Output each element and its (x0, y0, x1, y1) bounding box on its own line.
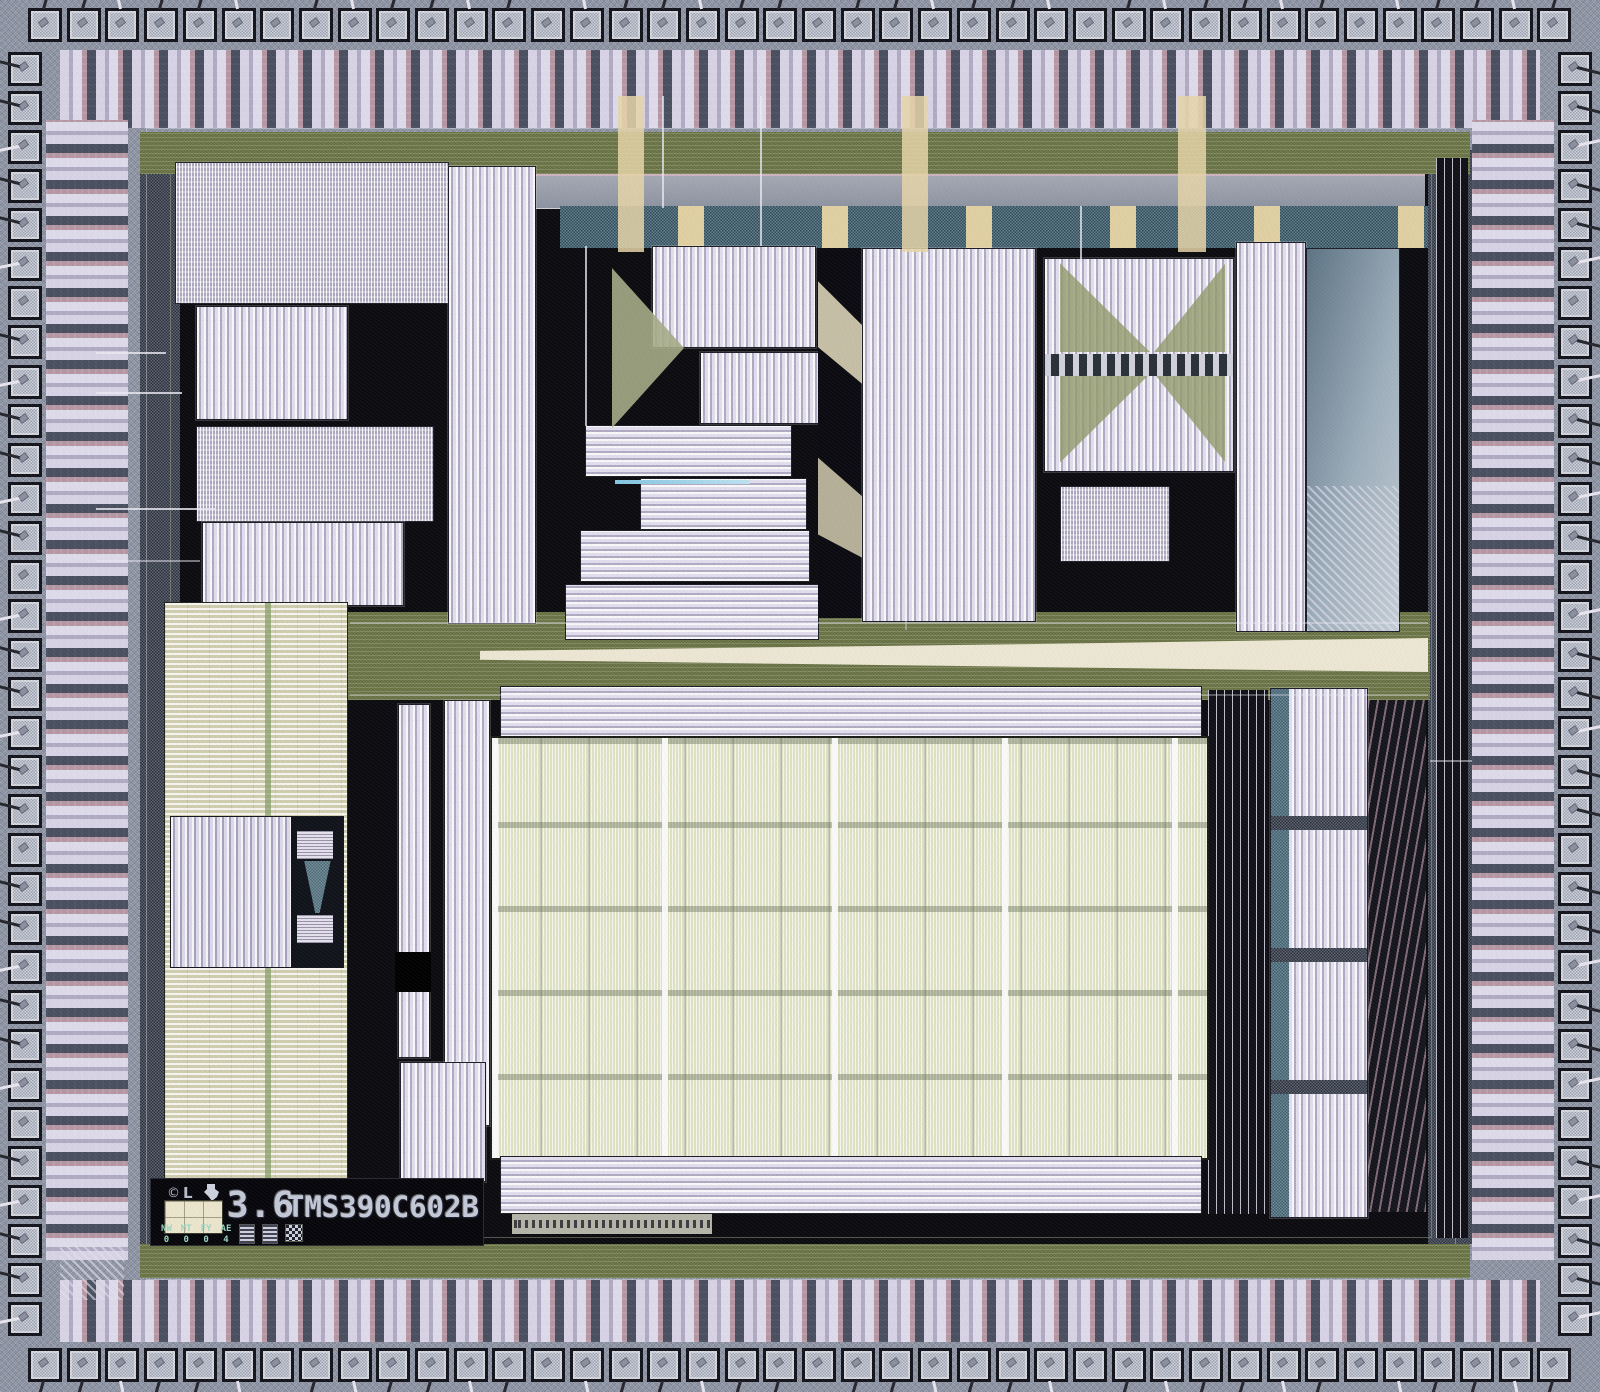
bond-pad (763, 8, 797, 42)
bond-pad (1558, 1224, 1592, 1258)
diagonal-routing-strip (1368, 700, 1426, 1212)
routing-gap (818, 252, 862, 618)
speckle-band (1271, 816, 1367, 830)
shifter-triangle (1060, 373, 1150, 462)
bond-pad (8, 52, 42, 86)
power-ring-bottom (140, 1244, 1470, 1278)
bond-pad (1305, 8, 1339, 42)
routing-wire (585, 246, 587, 426)
bond-pad (105, 1348, 139, 1382)
bond-pad (8, 169, 42, 203)
speckle-band (1271, 948, 1367, 962)
mask-glyph-box (263, 1225, 277, 1243)
bond-pad (1558, 599, 1592, 633)
hatch-pattern (1307, 486, 1399, 631)
cell-row-band-4 (565, 584, 819, 640)
bond-pad (1558, 1107, 1592, 1141)
corner-hatch (60, 1242, 124, 1300)
register-array-inset (170, 816, 344, 968)
bond-pad (879, 8, 913, 42)
speckle-band (1271, 1080, 1367, 1094)
bond-pad (8, 1146, 42, 1180)
bond-pad (531, 8, 565, 42)
bond-pad (8, 599, 42, 633)
via-stack-column (1178, 96, 1206, 252)
bond-pad (8, 286, 42, 320)
routing-wire (760, 96, 762, 246)
funnel-structure (295, 861, 339, 913)
bond-pad (841, 8, 875, 42)
bond-pad (260, 1348, 294, 1382)
bond-pad (8, 794, 42, 828)
bond-pad (531, 1348, 565, 1382)
cell-row-band-2 (640, 478, 807, 530)
bond-pad (299, 1348, 333, 1382)
bond-pad (8, 130, 42, 164)
part-number-text: TMS390C602B (287, 1190, 479, 1224)
bond-pad (1460, 8, 1494, 42)
bond-pad (8, 404, 42, 438)
beige-wedge (818, 281, 862, 427)
bond-pad (1558, 443, 1592, 477)
revision-value: 0 (203, 1236, 208, 1245)
bond-pad (1558, 638, 1592, 672)
scale-mark-text: 3.6 (227, 1185, 295, 1226)
bond-pad (1112, 8, 1146, 42)
bond-pad (647, 8, 681, 42)
bond-pad (338, 8, 372, 42)
bond-pad (609, 1348, 643, 1382)
bond-pad (1558, 130, 1592, 164)
io-driver-band-top (60, 50, 1540, 128)
revision-label: NW (161, 1225, 172, 1234)
revision-value: 4 (223, 1236, 228, 1245)
bond-pad (492, 8, 526, 42)
revision-label: FY (201, 1225, 212, 1234)
bond-pad (8, 443, 42, 477)
bond-pad (8, 560, 42, 594)
bond-pad (1558, 911, 1592, 945)
beige-wedge (818, 442, 862, 596)
bond-pad-ring-right (1558, 52, 1592, 1336)
bond-pad (1421, 8, 1455, 42)
bond-pad (1558, 1029, 1592, 1063)
bond-pad (1421, 1348, 1455, 1382)
bond-pad (1537, 1348, 1571, 1382)
array-id-strip (512, 1214, 712, 1234)
bond-pad (8, 1185, 42, 1219)
mask-glyph-box (240, 1225, 254, 1243)
routing-fan-right (1436, 158, 1468, 1238)
bus-wire (350, 694, 1428, 696)
bond-pad (1499, 1348, 1533, 1382)
revision-code: FY 0 (201, 1225, 212, 1245)
bond-pad (1558, 755, 1592, 789)
bond-pad (1558, 1146, 1592, 1180)
bond-pad (1150, 1348, 1184, 1382)
routing-wire (96, 352, 166, 354)
routing-wire (1430, 760, 1472, 762)
blue-metal-streak (615, 480, 750, 484)
bond-pad (1558, 716, 1592, 750)
bond-pad (1228, 1348, 1262, 1382)
revision-label: MT (181, 1225, 192, 1234)
bond-pad (647, 1348, 681, 1382)
logo-letter: L (183, 1184, 193, 1202)
bond-pad (299, 8, 333, 42)
bond-pad (8, 950, 42, 984)
revision-code: AE 4 (221, 1225, 232, 1245)
bond-pad (8, 521, 42, 555)
bond-pad (8, 482, 42, 516)
ti-logo-icon (203, 1183, 220, 1202)
cell-block-center-2 (700, 352, 820, 424)
bond-pad (1189, 8, 1223, 42)
bond-pad (105, 8, 139, 42)
array-bottom-cell-row (500, 1156, 1202, 1214)
bond-pad (8, 1302, 42, 1336)
bond-pad (1558, 833, 1592, 867)
bond-pad (1150, 8, 1184, 42)
bond-pad (1558, 482, 1592, 516)
cell-column-block-left-3 (202, 522, 404, 606)
revision-code-row: NW 0 MT 0 FY 0 AE 4 (161, 1225, 302, 1245)
bond-pad (1558, 247, 1592, 281)
die-marking-band: © L 3.6 TMS390C602B NW 0 MT 0 FY 0 AE 4 (150, 1178, 484, 1246)
logic-block-left-2 (196, 426, 434, 522)
routing-gap-lines (1208, 690, 1268, 1214)
bond-pad (1383, 1348, 1417, 1382)
bond-pad (338, 1348, 372, 1382)
bond-pad (1558, 872, 1592, 906)
bond-pad (918, 8, 952, 42)
bond-pad (1558, 91, 1592, 125)
bond-pad (1189, 1348, 1223, 1382)
bond-pad (8, 208, 42, 242)
bond-pad (415, 1348, 449, 1382)
bond-pad (144, 1348, 178, 1382)
bond-pad (260, 8, 294, 42)
bond-pad (1073, 1348, 1107, 1382)
shifter-triangle (1154, 373, 1225, 462)
cell-row-band-3 (580, 530, 810, 582)
bond-pad (8, 1068, 42, 1102)
copyright-icon: © (167, 1186, 180, 1201)
bond-pad (1073, 8, 1107, 42)
revision-value: 0 (164, 1236, 169, 1245)
bond-pad (957, 8, 991, 42)
routing-wire (96, 508, 216, 510)
steel-gradient-panel (1306, 248, 1400, 632)
bond-pad (67, 8, 101, 42)
cell-strip-bottom-right (1270, 688, 1368, 1218)
bond-pad (1558, 52, 1592, 86)
mini-array (297, 831, 333, 859)
revision-label: AE (221, 1225, 232, 1234)
routing-wire (662, 96, 664, 208)
bond-pad (1558, 677, 1592, 711)
bond-pad (957, 1348, 991, 1382)
bond-pad (8, 1263, 42, 1297)
bond-pad (8, 1029, 42, 1063)
bond-pad (8, 911, 42, 945)
io-driver-band-bottom (60, 1280, 1540, 1342)
bond-pad (1267, 1348, 1301, 1382)
bond-pad (686, 1348, 720, 1382)
bond-pad (802, 1348, 836, 1382)
bond-pad (8, 990, 42, 1024)
shifter-triangle (1060, 263, 1150, 352)
bond-pad (28, 8, 62, 42)
routing-wire (1080, 206, 1082, 262)
bond-pad (1034, 1348, 1068, 1382)
bond-pad (1537, 8, 1571, 42)
cell-column-block-left-1 (196, 306, 348, 420)
bond-pad (454, 1348, 488, 1382)
bond-pad (1558, 1185, 1592, 1219)
bond-pad (1558, 950, 1592, 984)
bond-pad (570, 1348, 604, 1382)
cell-strip-right (1236, 242, 1306, 632)
bond-pad (8, 91, 42, 125)
bond-pad (918, 1348, 952, 1382)
bus-wire (350, 622, 1428, 624)
routing-wire (905, 250, 907, 630)
bond-pad (8, 325, 42, 359)
bond-pad (1267, 8, 1301, 42)
barrel-shifter-block (1044, 258, 1234, 472)
cell-column-block-tall (448, 166, 536, 624)
bond-pad (1558, 404, 1592, 438)
bond-pad (8, 833, 42, 867)
decoder-strip-1 (398, 704, 430, 1058)
revision-value: 0 (184, 1236, 189, 1245)
die-photograph: © L 3.6 TMS390C602B NW 0 MT 0 FY 0 AE 4 (0, 0, 1600, 1392)
io-driver-band-left (46, 120, 128, 1260)
bond-pad (67, 1348, 101, 1382)
routing-wire (96, 560, 200, 562)
bond-pad (222, 8, 256, 42)
bond-pad (1558, 990, 1592, 1024)
bond-pad (686, 8, 720, 42)
bond-pad (1558, 794, 1592, 828)
bond-pad (1112, 1348, 1146, 1382)
decoder-strip-3 (400, 1062, 486, 1182)
bond-pad (1558, 325, 1592, 359)
bond-pad (1558, 1263, 1592, 1297)
bond-pad (1558, 286, 1592, 320)
bond-pad (8, 1107, 42, 1141)
bond-pad (415, 8, 449, 42)
via-stack-column (902, 96, 928, 252)
bond-pad (996, 1348, 1030, 1382)
logic-block-right (1060, 486, 1170, 562)
bond-pad (841, 1348, 875, 1382)
bond-pad (763, 1348, 797, 1382)
bond-pad (183, 1348, 217, 1382)
bond-pad (1558, 1068, 1592, 1102)
bond-pad-ring-bottom (28, 1348, 1572, 1382)
cell-row-band-1 (585, 425, 792, 477)
bond-pad (183, 8, 217, 42)
bond-pad (8, 872, 42, 906)
mini-array (297, 915, 333, 943)
bond-pad (1558, 521, 1592, 555)
bond-pad (8, 1224, 42, 1258)
bond-pad (376, 1348, 410, 1382)
bond-pad (376, 8, 410, 42)
bond-pad (1344, 1348, 1378, 1382)
bond-pad (492, 1348, 526, 1382)
via-stack-column (618, 96, 644, 252)
bond-pad (1558, 365, 1592, 399)
bond-pad (222, 1348, 256, 1382)
bond-pad (8, 755, 42, 789)
bond-pad-ring-left (8, 52, 42, 1336)
routing-wire (96, 392, 182, 394)
bond-pad (1558, 169, 1592, 203)
main-datapath-array (490, 736, 1209, 1160)
bond-pad-ring-top (28, 8, 1572, 42)
bond-pad (1460, 1348, 1494, 1382)
bond-pad (1228, 8, 1262, 42)
bond-pad (1305, 1348, 1339, 1382)
shifter-triangle (1154, 263, 1225, 352)
bond-pad (570, 8, 604, 42)
bond-pad (1344, 8, 1378, 42)
bond-pad (8, 677, 42, 711)
bond-pad (8, 638, 42, 672)
bond-pad (8, 716, 42, 750)
bond-pad (725, 1348, 759, 1382)
bond-pad (996, 8, 1030, 42)
revision-code: NW 0 (161, 1225, 172, 1245)
bond-pad (1383, 8, 1417, 42)
bond-pad (1499, 8, 1533, 42)
dark-notch (395, 952, 431, 992)
bond-pad (1558, 208, 1592, 242)
bond-pad (8, 247, 42, 281)
logic-block-top-left (175, 162, 449, 304)
bond-pad (879, 1348, 913, 1382)
cell-block-center-1 (652, 246, 816, 348)
bond-pad (725, 8, 759, 42)
bond-pad (1558, 1302, 1592, 1336)
inset-dark-region (291, 817, 343, 967)
bond-pad (454, 8, 488, 42)
bond-pad (1558, 560, 1592, 594)
bond-pad (802, 8, 836, 42)
bond-pad (8, 365, 42, 399)
bond-pad (1034, 8, 1068, 42)
bond-pad (144, 8, 178, 42)
mask-checker-mark (286, 1225, 302, 1241)
revision-code: MT 0 (181, 1225, 192, 1245)
bond-pad (28, 1348, 62, 1382)
bond-pad (609, 8, 643, 42)
datapath-block-center-right (862, 248, 1036, 622)
shifter-mid-band (1045, 354, 1233, 376)
io-driver-band-right (1472, 120, 1554, 1260)
